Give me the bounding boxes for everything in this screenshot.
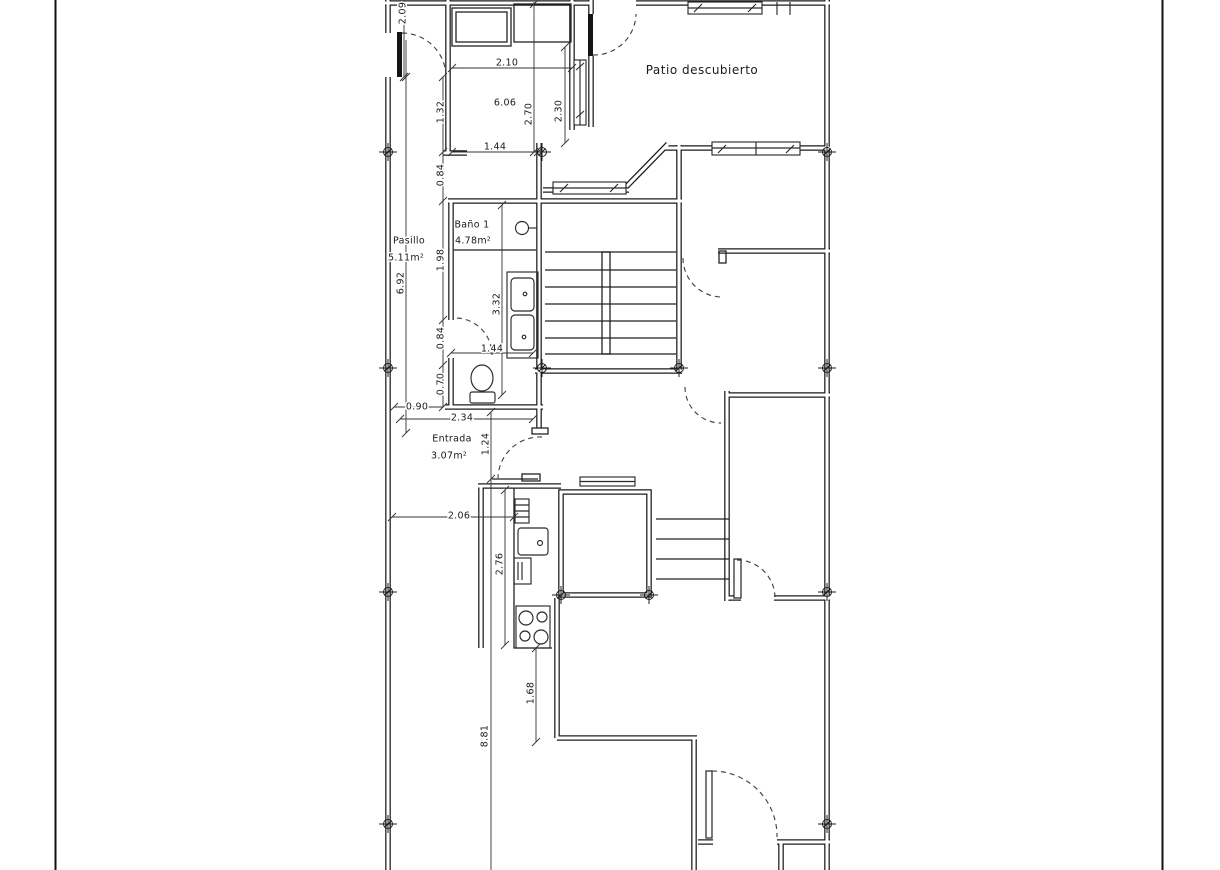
- dim-label-090: 0.90: [406, 402, 428, 413]
- kitchen-counter: [514, 488, 552, 648]
- window-shaft: [574, 60, 586, 125]
- dim-label-124: 1.24: [481, 433, 492, 455]
- dim-label-210: 2.10: [496, 58, 518, 69]
- dim-label-132: 1.32: [436, 101, 447, 123]
- room-area-entrada: 3.07m²: [431, 451, 467, 462]
- dim-label-084a: 0.84: [436, 164, 447, 186]
- bottom-door-arc: [712, 771, 777, 837]
- floor-plan-sheet: Patio descubierto Pasillo 5.11m² Baño 1 …: [0, 0, 1220, 870]
- dim-label-084b: 0.84: [436, 327, 447, 349]
- room-c-door-arc: [737, 560, 775, 597]
- vent-central-room: [580, 477, 635, 486]
- basin-1: [511, 278, 534, 311]
- dim-label-230: 2.30: [554, 100, 565, 122]
- dim-label-206: 2.06: [448, 511, 470, 522]
- dim-label-168: 1.68: [526, 682, 537, 704]
- room-a-door-arc: [683, 258, 722, 297]
- kitchen-sink-icon: [518, 528, 548, 555]
- room-area-pasillo: 5.11m²: [388, 253, 424, 264]
- kitchen-fixtures: [514, 488, 552, 648]
- door-leaf-bottom: [706, 771, 712, 838]
- dim-label-234: 2.34: [451, 413, 473, 424]
- dim-label-606: 6.06: [494, 98, 516, 109]
- dim-label-070: 0.70: [436, 373, 447, 395]
- entry-door-leaf: [397, 32, 402, 77]
- floor-plan-drawing: Patio descubierto Pasillo 5.11m² Baño 1 …: [0, 0, 1220, 870]
- room-label-patio: Patio descubierto: [646, 63, 759, 77]
- stair-lower-flight: [656, 519, 729, 579]
- room-area-bano: 4.78m²: [455, 236, 491, 247]
- toilet-tank: [470, 392, 495, 403]
- entry-door-arc: [402, 33, 446, 77]
- closet-cabinets: [452, 4, 571, 46]
- entrada-door-arc: [498, 437, 542, 478]
- dim-label-198: 1.98: [436, 249, 447, 271]
- dim-label-270: 2.70: [524, 103, 535, 125]
- room-label-pasillo: Pasillo: [393, 236, 425, 247]
- door-leaf-room-c: [734, 559, 741, 598]
- patio-door-leaf: [588, 14, 593, 56]
- grid-markers: [379, 143, 836, 833]
- dim-label-881: 8.81: [480, 725, 491, 747]
- patio-door-arc: [593, 14, 636, 55]
- dim-label-144b: 1.44: [481, 344, 503, 355]
- washbasin-icon: [516, 222, 529, 235]
- dim-label-276: 2.76: [495, 553, 506, 575]
- staircase: [545, 252, 729, 579]
- window-patio-bottom: [712, 142, 800, 155]
- room-label-entrada: Entrada: [432, 434, 471, 445]
- window-top-patio: [688, 2, 762, 14]
- dim-label-332: 3.32: [492, 293, 503, 315]
- dim-label-209: 2.09: [398, 2, 409, 24]
- toilet-icon: [471, 365, 493, 391]
- basin-2: [511, 315, 534, 350]
- dim-label-144a: 1.44: [484, 142, 506, 153]
- room-label-bano: Baño 1: [454, 220, 489, 231]
- room-b-door-arc: [685, 387, 721, 423]
- dim-label-692: 6.92: [396, 272, 407, 294]
- doors-layer: [397, 14, 777, 838]
- stair-divider: [602, 252, 610, 354]
- window-hall: [553, 182, 626, 194]
- wall-foot: [532, 428, 548, 434]
- entrada-door-threshold: [522, 474, 540, 481]
